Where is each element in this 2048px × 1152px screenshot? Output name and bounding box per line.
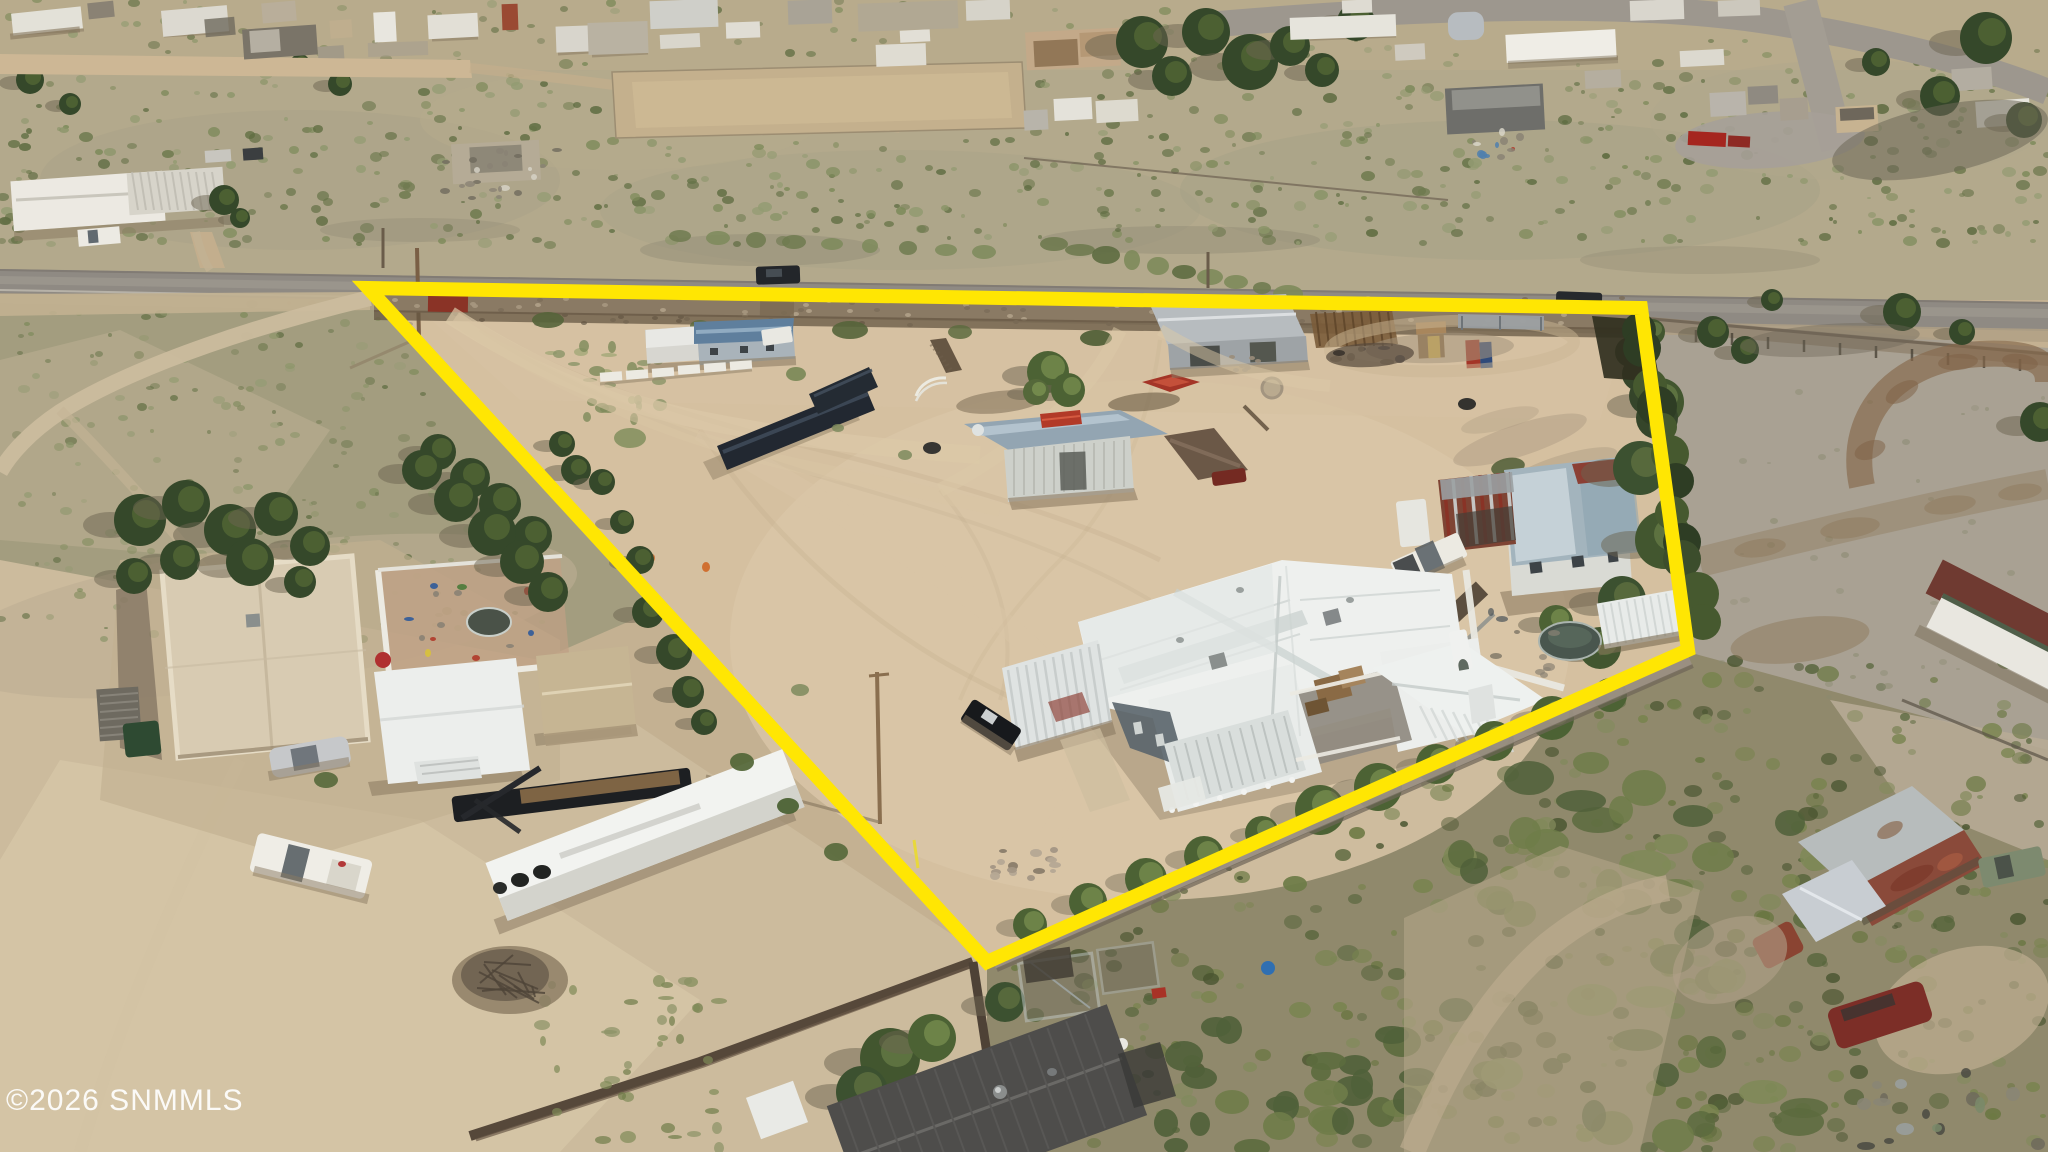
svg-text:©2026 SNMMLS: ©2026 SNMMLS [6,1084,244,1117]
